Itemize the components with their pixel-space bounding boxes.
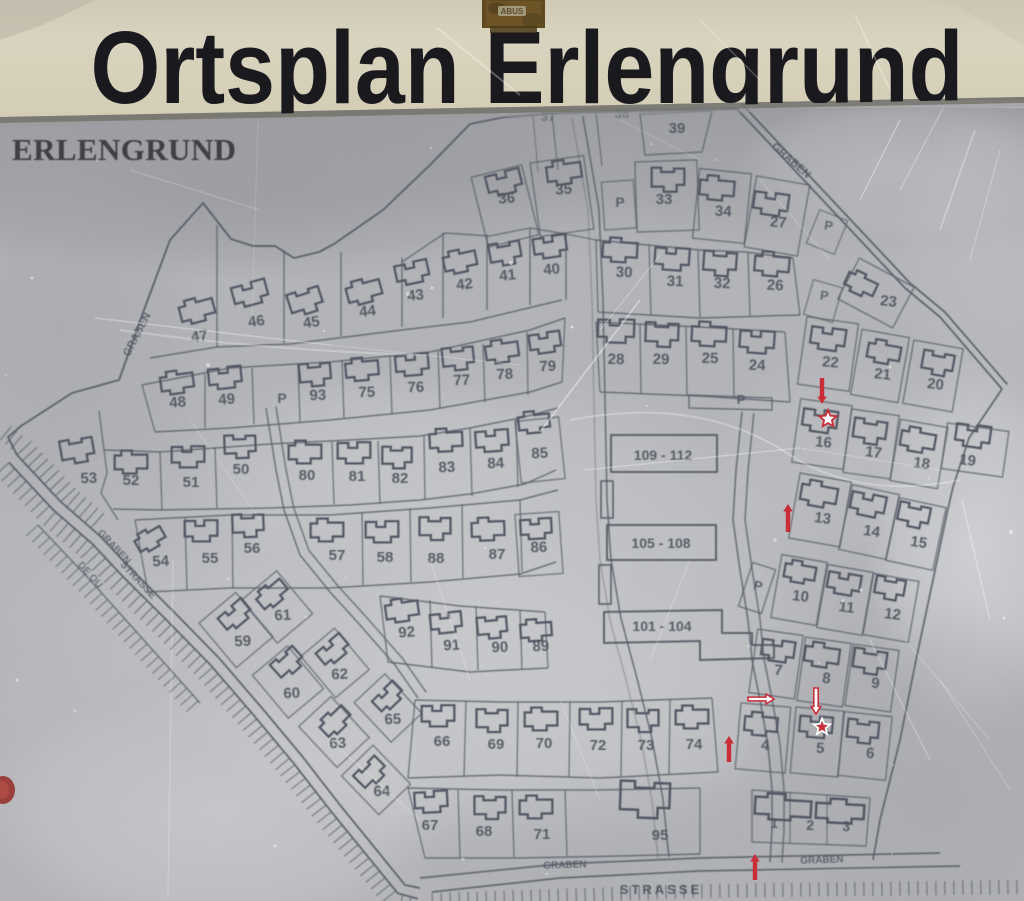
svg-text:ABUS: ABUS bbox=[501, 7, 524, 16]
